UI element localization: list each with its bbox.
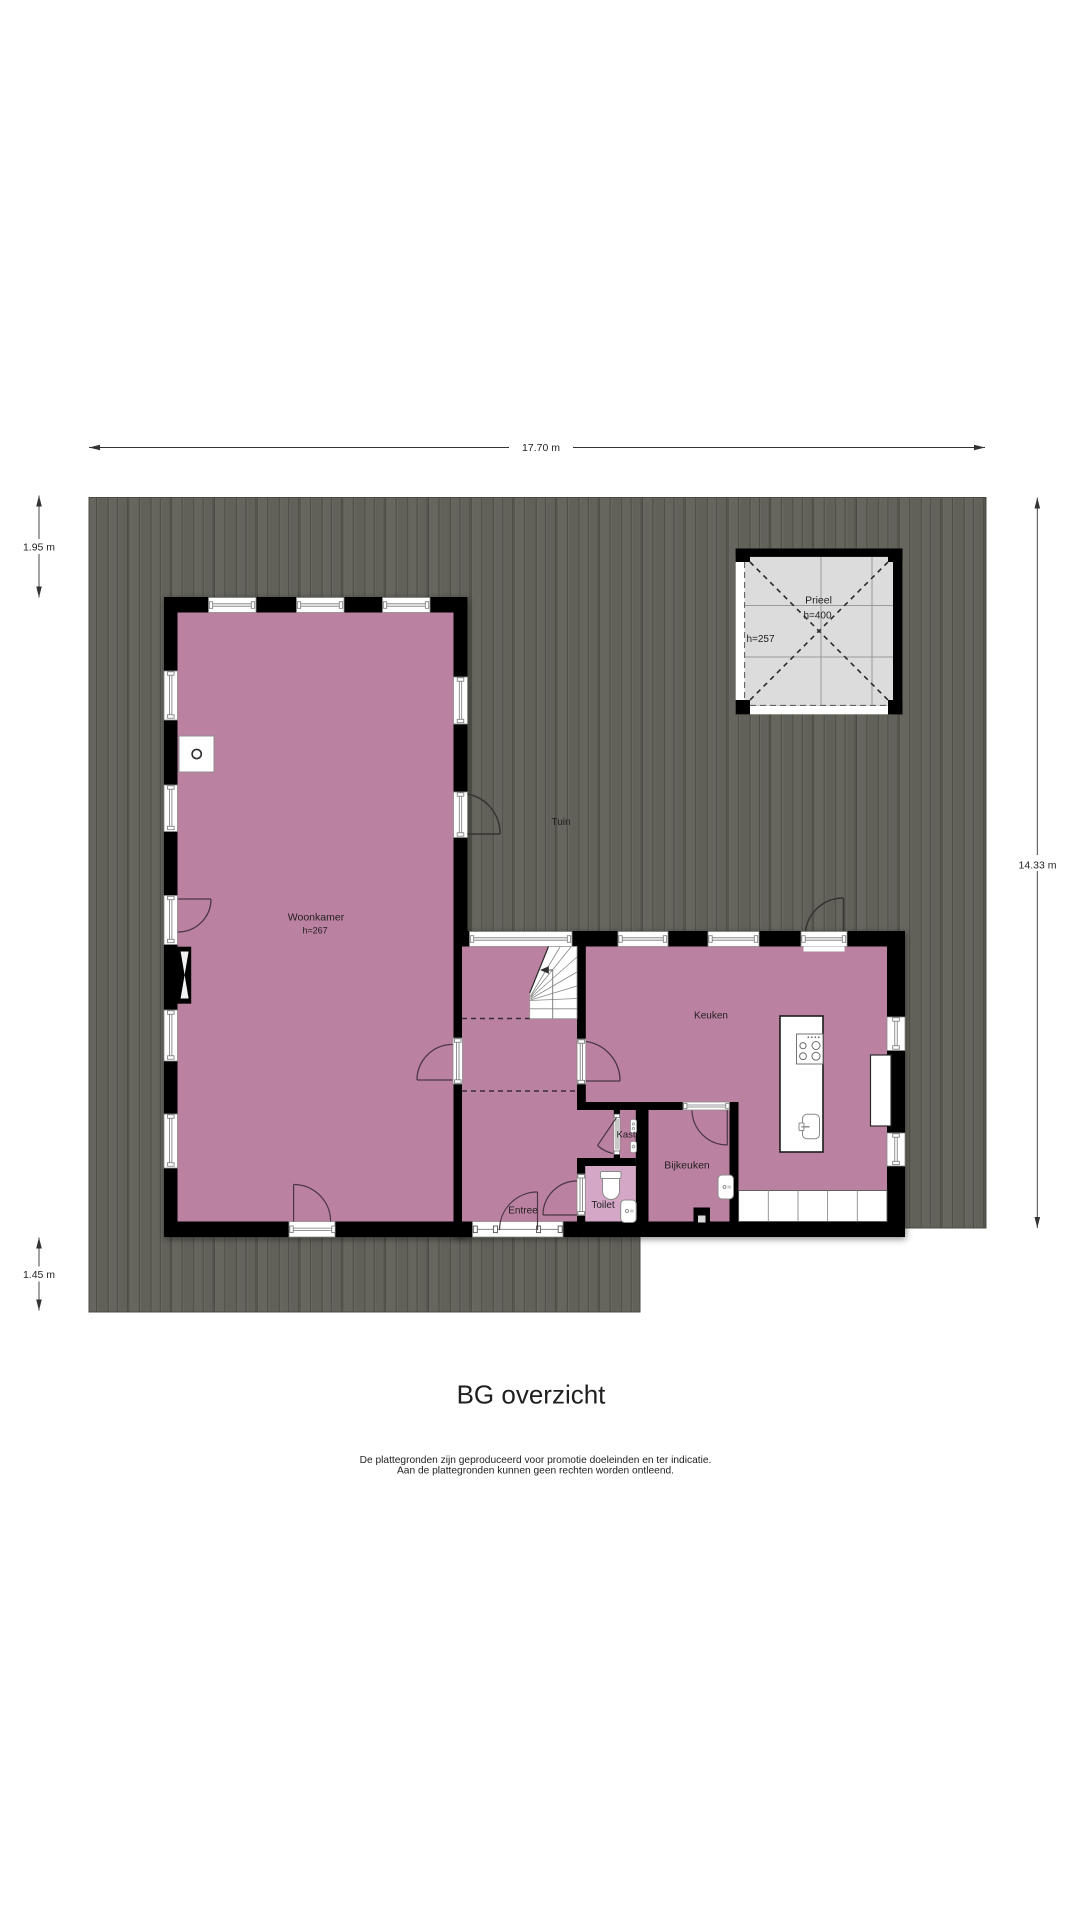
svg-text:Keuken: Keuken	[694, 1011, 728, 1022]
svg-text:h=400: h=400	[803, 611, 832, 622]
svg-text:1.95 m: 1.95 m	[23, 542, 55, 554]
svg-text:De plattegronden zijn geproduc: De plattegronden zijn geproduceerd voor …	[360, 1455, 712, 1466]
svg-text:17.70 m: 17.70 m	[522, 442, 560, 454]
svg-text:Woonkamer: Woonkamer	[288, 912, 345, 924]
svg-text:BG overzicht: BG overzicht	[457, 1380, 607, 1410]
svg-text:Kast: Kast	[616, 1130, 635, 1141]
svg-text:h=257: h=257	[746, 634, 775, 645]
svg-text:1.45 m: 1.45 m	[23, 1269, 55, 1281]
svg-text:Prieel: Prieel	[805, 595, 832, 607]
svg-text:14.33 m: 14.33 m	[1019, 860, 1057, 872]
svg-text:Toilet: Toilet	[591, 1200, 615, 1211]
svg-text:Tuin: Tuin	[551, 817, 570, 828]
svg-text:Aan de plattegronden kunnen ge: Aan de plattegronden kunnen geen rechten…	[397, 1466, 674, 1477]
svg-text:Bijkeuken: Bijkeuken	[664, 1160, 710, 1172]
svg-text:Entree: Entree	[508, 1206, 538, 1217]
svg-text:h=267: h=267	[302, 926, 327, 936]
